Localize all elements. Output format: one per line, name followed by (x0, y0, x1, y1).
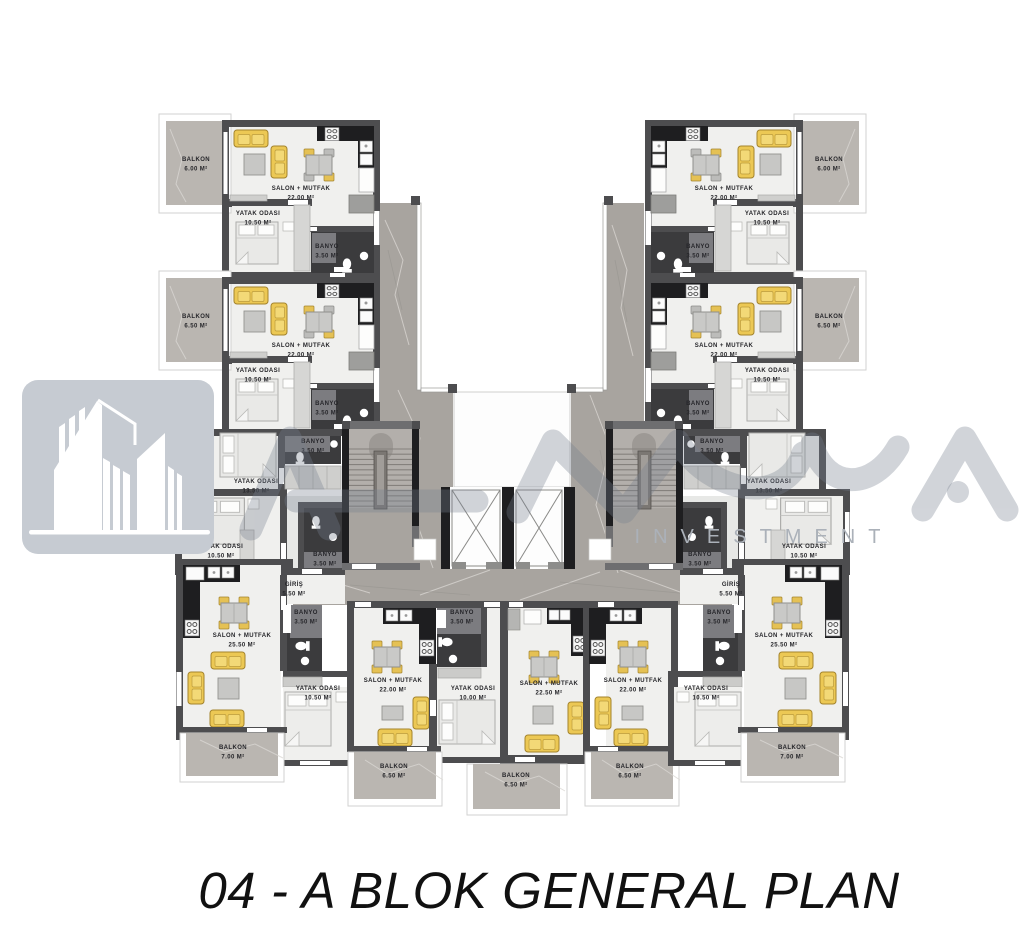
svg-text:SALON + MUTFAK: SALON + MUTFAK (272, 186, 331, 192)
svg-text:YATAK ODASI: YATAK ODASI (745, 368, 789, 374)
svg-text:6.00 M²: 6.00 M² (817, 166, 840, 173)
svg-text:3.50 M²: 3.50 M² (688, 561, 711, 568)
svg-text:6.50 M²: 6.50 M² (618, 773, 641, 780)
svg-text:INVESTMENT: INVESTMENT (635, 526, 894, 548)
svg-text:BALKON: BALKON (219, 745, 247, 751)
svg-text:10.50 M²: 10.50 M² (791, 553, 818, 560)
svg-text:3.50 M²: 3.50 M² (313, 561, 336, 568)
svg-text:BALKON: BALKON (380, 764, 408, 770)
svg-text:6.50 M²: 6.50 M² (504, 782, 527, 789)
svg-text:BANYO: BANYO (688, 552, 712, 558)
svg-text:6.50 M²: 6.50 M² (382, 773, 405, 780)
svg-text:YATAK ODASI: YATAK ODASI (236, 211, 280, 217)
svg-text:BALKON: BALKON (502, 773, 530, 779)
svg-text:10.50 M²: 10.50 M² (208, 553, 235, 560)
svg-text:BANYO: BANYO (315, 401, 339, 407)
svg-text:BALKON: BALKON (778, 745, 806, 751)
svg-text:3.50 M²: 3.50 M² (686, 410, 709, 417)
svg-text:SALON + MUTFAK: SALON + MUTFAK (520, 681, 579, 687)
svg-text:7.00 M²: 7.00 M² (221, 754, 244, 761)
svg-text:SALON + MUTFAK: SALON + MUTFAK (364, 678, 423, 684)
svg-text:SALON + MUTFAK: SALON + MUTFAK (272, 343, 331, 349)
svg-text:22.00 M²: 22.00 M² (380, 687, 407, 694)
svg-text:6.50 M²: 6.50 M² (817, 323, 840, 330)
svg-text:YATAK ODASI: YATAK ODASI (684, 686, 728, 692)
svg-text:YATAK ODASI: YATAK ODASI (451, 686, 495, 692)
svg-text:6.50 M²: 6.50 M² (184, 323, 207, 330)
svg-text:YATAK ODASI: YATAK ODASI (745, 211, 789, 217)
svg-text:3.50 M²: 3.50 M² (315, 410, 338, 417)
svg-text:BANYO: BANYO (313, 552, 337, 558)
svg-text:22.50 M²: 22.50 M² (536, 690, 563, 697)
svg-text:BANYO: BANYO (450, 610, 474, 616)
svg-text:SALON + MUTFAK: SALON + MUTFAK (213, 633, 272, 639)
svg-text:3.50 M²: 3.50 M² (450, 619, 473, 626)
svg-text:3.50 M²: 3.50 M² (707, 619, 730, 626)
svg-text:10.50 M²: 10.50 M² (305, 695, 332, 702)
svg-text:3.50 M²: 3.50 M² (294, 619, 317, 626)
svg-text:SALON + MUTFAK: SALON + MUTFAK (695, 186, 754, 192)
svg-text:YATAK ODASI: YATAK ODASI (236, 368, 280, 374)
svg-text:BANYO: BANYO (707, 610, 731, 616)
svg-text:10.50 M²: 10.50 M² (754, 220, 781, 227)
svg-text:3.50 M²: 3.50 M² (686, 253, 709, 260)
svg-text:5.50 M²: 5.50 M² (719, 591, 742, 598)
svg-text:BANYO: BANYO (294, 610, 318, 616)
svg-text:10.50 M²: 10.50 M² (693, 695, 720, 702)
svg-text:BANYO: BANYO (315, 244, 339, 250)
svg-text:GİRİŞ: GİRİŞ (285, 581, 303, 588)
svg-text:GİRİŞ: GİRİŞ (722, 581, 740, 588)
svg-text:BALKON: BALKON (182, 314, 210, 320)
svg-text:BANYO: BANYO (700, 439, 724, 445)
svg-text:10.00 M²: 10.00 M² (460, 695, 487, 702)
svg-text:04 - A BLOK GENERAL PLAN: 04 - A BLOK GENERAL PLAN (198, 862, 899, 919)
svg-text:25.50 M²: 25.50 M² (229, 642, 256, 649)
svg-text:22.00 M²: 22.00 M² (711, 195, 738, 202)
svg-text:10.50 M²: 10.50 M² (754, 377, 781, 384)
svg-text:BALKON: BALKON (815, 314, 843, 320)
svg-text:SALON + MUTFAK: SALON + MUTFAK (695, 343, 754, 349)
svg-text:22.00 M²: 22.00 M² (288, 195, 315, 202)
svg-text:5.50 M²: 5.50 M² (282, 591, 305, 598)
svg-text:22.00 M²: 22.00 M² (711, 352, 738, 359)
svg-text:BANYO: BANYO (686, 401, 710, 407)
svg-text:BALKON: BALKON (182, 157, 210, 163)
svg-text:SALON + MUTFAK: SALON + MUTFAK (604, 678, 663, 684)
svg-text:22.00 M²: 22.00 M² (620, 687, 647, 694)
svg-text:BALKON: BALKON (616, 764, 644, 770)
svg-text:YATAK ODASI: YATAK ODASI (296, 686, 340, 692)
svg-text:22.00 M²: 22.00 M² (288, 352, 315, 359)
svg-text:7.00 M²: 7.00 M² (780, 754, 803, 761)
svg-text:10.50 M²: 10.50 M² (245, 220, 272, 227)
svg-text:SALON + MUTFAK: SALON + MUTFAK (755, 633, 814, 639)
svg-text:10.50 M²: 10.50 M² (245, 377, 272, 384)
svg-text:BANYO: BANYO (686, 244, 710, 250)
svg-text:3.50 M²: 3.50 M² (315, 253, 338, 260)
svg-text:3.50 M²: 3.50 M² (700, 448, 723, 455)
svg-text:25.50 M²: 25.50 M² (771, 642, 798, 649)
svg-text:6.00 M²: 6.00 M² (184, 166, 207, 173)
svg-text:BALKON: BALKON (815, 157, 843, 163)
